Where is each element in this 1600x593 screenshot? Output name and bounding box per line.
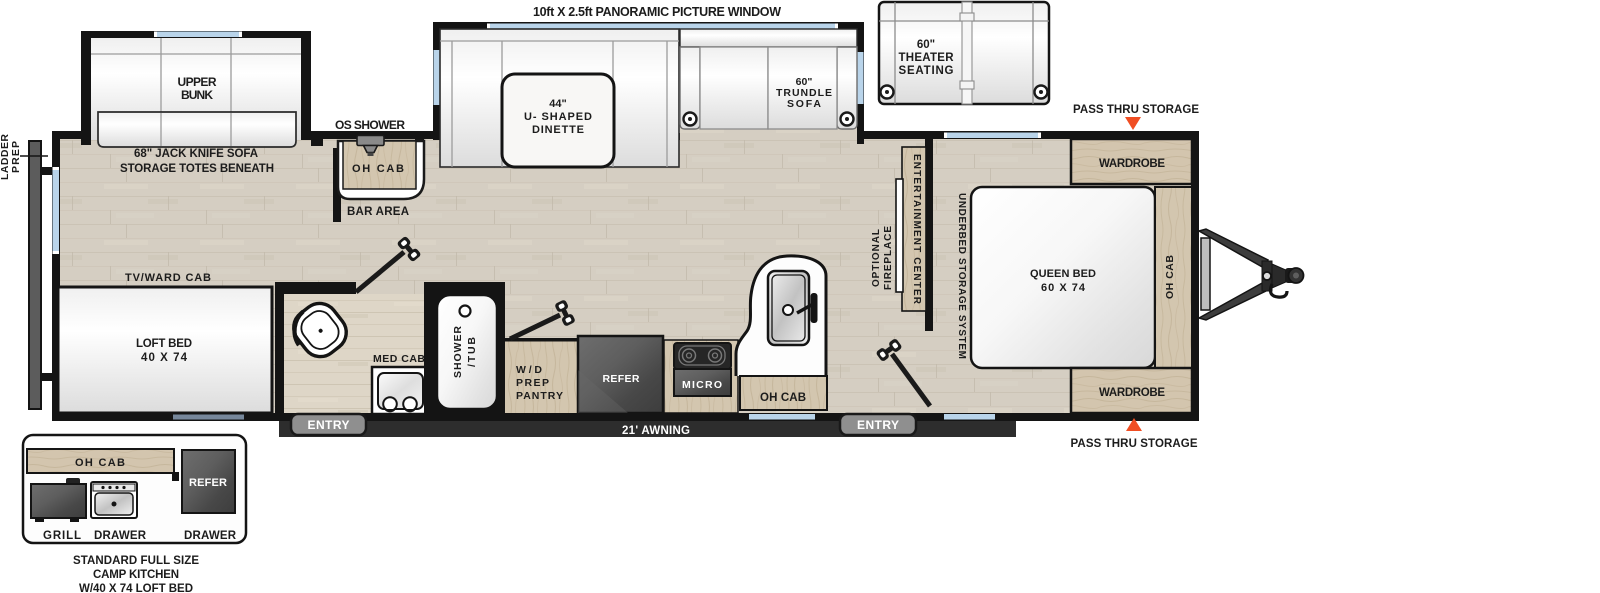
- svg-text:TRUNDLE: TRUNDLE: [776, 87, 832, 99]
- svg-text:PASS THRU STORAGE: PASS THRU STORAGE: [1071, 438, 1198, 450]
- svg-text:SEATING: SEATING: [899, 65, 954, 77]
- svg-text:WARDROBE: WARDROBE: [1099, 387, 1165, 399]
- svg-text:STORAGE TOTES BENEATH: STORAGE TOTES BENEATH: [120, 163, 274, 175]
- svg-text:60": 60": [917, 39, 935, 51]
- svg-text:OPTIONAL: OPTIONAL: [871, 229, 882, 287]
- svg-text:DRAWER: DRAWER: [94, 530, 147, 542]
- svg-text:THEATER: THEATER: [899, 52, 955, 64]
- svg-text:STANDARD FULL SIZE: STANDARD FULL SIZE: [73, 555, 199, 567]
- svg-text:ENTERTAINMENT CENTER: ENTERTAINMENT CENTER: [911, 154, 922, 305]
- svg-text:BUNK: BUNK: [181, 88, 213, 102]
- svg-text:PANTRY: PANTRY: [516, 390, 563, 402]
- svg-text:OH CAB: OH CAB: [75, 457, 125, 469]
- svg-text:MICRO: MICRO: [682, 379, 722, 391]
- svg-text:W/40 X 74 LOFT BED: W/40 X 74 LOFT BED: [79, 583, 193, 593]
- svg-text:WARDROBE: WARDROBE: [1099, 158, 1165, 170]
- svg-text:SHOWER: SHOWER: [452, 326, 464, 378]
- svg-text:DINETTE: DINETTE: [532, 124, 584, 136]
- svg-text:REFER: REFER: [603, 373, 640, 385]
- svg-text:W/D: W/D: [516, 364, 542, 376]
- svg-text:40 X 74: 40 X 74: [141, 352, 188, 364]
- svg-text:DRAWER: DRAWER: [184, 530, 237, 542]
- svg-text:BAR AREA: BAR AREA: [347, 206, 409, 218]
- svg-text:10ft X 2.5ft PANORAMIC PICTURE: 10ft X 2.5ft PANORAMIC PICTURE WINDOW: [533, 5, 781, 19]
- svg-text:44": 44": [549, 98, 566, 110]
- svg-text:68" JACK KNIFE SOFA: 68" JACK KNIFE SOFA: [134, 148, 258, 160]
- svg-text:TV/WARD CAB: TV/WARD CAB: [125, 272, 211, 284]
- svg-text:REFER: REFER: [189, 477, 227, 489]
- svg-text:/TUB: /TUB: [466, 337, 478, 367]
- svg-text:PREP: PREP: [10, 141, 22, 173]
- svg-text:UPPER: UPPER: [178, 75, 217, 89]
- svg-text:ENTRY: ENTRY: [308, 418, 350, 432]
- svg-text:21' AWNING: 21' AWNING: [622, 425, 690, 437]
- svg-text:U- SHAPED: U- SHAPED: [524, 111, 592, 123]
- svg-text:QUEEN BED: QUEEN BED: [1030, 268, 1096, 280]
- svg-text:OH CAB: OH CAB: [1164, 255, 1176, 299]
- svg-text:GRILL: GRILL: [43, 530, 81, 542]
- svg-text:FIREPLACE: FIREPLACE: [883, 226, 894, 290]
- svg-text:PASS THRU STORAGE: PASS THRU STORAGE: [1073, 104, 1199, 116]
- svg-text:ENTRY: ENTRY: [857, 418, 899, 432]
- svg-text:LOFT BED: LOFT BED: [136, 338, 192, 350]
- svg-text:60 X 74: 60 X 74: [1041, 282, 1086, 294]
- svg-text:OH CAB: OH CAB: [352, 163, 404, 175]
- svg-text:OS SHOWER: OS SHOWER: [335, 118, 405, 132]
- svg-text:MED CAB: MED CAB: [373, 353, 425, 365]
- svg-text:OH CAB: OH CAB: [760, 392, 806, 404]
- svg-text:UNDERBED STORAGE SYSTEM: UNDERBED STORAGE SYSTEM: [956, 193, 967, 359]
- svg-text:CAMP KITCHEN: CAMP KITCHEN: [93, 569, 179, 581]
